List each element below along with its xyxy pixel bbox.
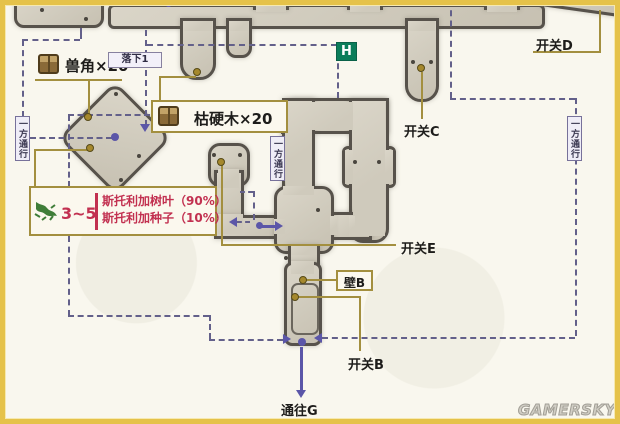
map-room-top-left [14, 0, 104, 28]
pit-marking [291, 283, 319, 335]
area-h-marker: H [337, 43, 356, 60]
diamond-entry-point [111, 133, 119, 141]
route-chamber-hook-h [240, 191, 253, 193]
dry-wood-label: 枯硬木×20 [194, 108, 272, 129]
wall-b-label: 壁B [344, 276, 365, 290]
chest-icon [38, 54, 59, 74]
exit-g-label: 通往G [281, 400, 318, 419]
top-edge-point [165, 0, 172, 7]
enemy-drop-1: 斯托利加树叶（90%） [102, 192, 227, 209]
route-left-top [22, 40, 24, 117]
one-way-arrow-line [261, 225, 276, 228]
wall-b-box: 壁B [336, 270, 373, 291]
route-right-1 [450, 0, 452, 98]
map-corridor-top-band [108, 4, 545, 29]
beast-horn-point [84, 113, 92, 121]
map-fragment-top-right [538, 0, 620, 18]
exit-point [298, 338, 306, 346]
route-bl-top [68, 114, 150, 116]
lizard-icon [33, 199, 60, 224]
route-chamber-hook-v [253, 191, 255, 220]
switch-e-point [217, 158, 225, 166]
switch-d-label: 开关D [536, 35, 573, 54]
switch-e-label: 开关E [401, 238, 436, 257]
dungeon-map: 兽角×20 落下1 枯硬木×20 3~5 斯托利加树叶（90%） 斯托利加种子（… [0, 0, 620, 424]
switch-c-point [417, 64, 425, 72]
route-bl-2 [68, 236, 70, 316]
route-room-drop [80, 28, 82, 39]
enemy-count: 3~5 [61, 204, 97, 223]
fall-1-text: 落下1 [122, 54, 149, 65]
enemy-drop-2: 斯托利加种子（10%） [102, 209, 227, 226]
route-top-mid [147, 44, 337, 46]
route-left-corner [22, 39, 80, 41]
one-way-label-center: 一方通行 [270, 136, 285, 181]
enemy-area-point [86, 144, 94, 152]
switch-b-point [291, 293, 299, 301]
switch-b-label: 开关B [348, 354, 384, 373]
exit-arrow-line [300, 347, 303, 392]
one-way-label-left: 一方通行 [15, 116, 30, 161]
fall-1-label: 落下1 [108, 52, 162, 68]
route-into-diamond [30, 137, 112, 139]
one-way-label-right: 一方通行 [567, 116, 582, 161]
chest-icon [158, 106, 179, 126]
route-bl-5 [209, 339, 283, 341]
route-bl-1 [68, 115, 70, 187]
one-way-arrow-dot [256, 222, 263, 229]
route-right-2 [450, 98, 575, 100]
gamersky-watermark: GAMERSKY [518, 401, 616, 419]
route-bl-3 [68, 315, 209, 317]
switch-c-label: 开关C [404, 121, 440, 140]
dry-wood-point [193, 68, 201, 76]
route-oneway-blocked [237, 221, 250, 223]
wall-b-point [299, 276, 307, 284]
route-bl-4 [209, 315, 211, 339]
